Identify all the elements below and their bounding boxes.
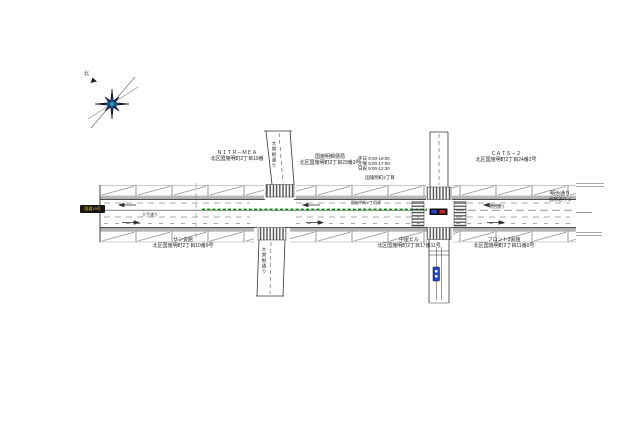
compass-north-label: 北	[84, 70, 89, 77]
area-name-label: 国施明町2丁目	[365, 175, 395, 181]
label-post-office: 国施明郵便局 北区国施明町2丁目23番3号	[299, 154, 360, 166]
lane-label-right: 明治通り	[489, 204, 505, 210]
compass-rose-icon	[88, 77, 138, 128]
label-building-sw: サン会館 北区国施明町2丁目10番9号	[152, 237, 213, 249]
building-nw-address: 北区国施明町2丁目19番	[210, 156, 263, 162]
label-building-ne: ＣＡＴＳ－２ 北区国施明町2丁目24番2号	[475, 151, 536, 163]
post-office-hours: 平日 9:00-19:00 土曜 9:00-17:00 日祝 9:00-12:3…	[358, 156, 390, 171]
post-office-address: 北区国施明町2丁目23番3号	[299, 160, 360, 166]
hours-sunday: 日祝 9:00-12:30	[358, 166, 390, 171]
road-right-end	[576, 184, 604, 236]
vertical-road-nw	[264, 131, 294, 185]
building-s-address: 北区国施明町2丁目17番11号	[377, 243, 441, 249]
building-ne-address: 北区国施明町2丁目24番2号	[475, 157, 536, 163]
label-building-s: 中屋ビル 北区国施明町2丁目17番11号	[377, 237, 441, 249]
road-name-vertical-upper: 大曽根通り	[271, 141, 277, 169]
label-street-right: 明治通り 仮称通り 2	[549, 191, 571, 202]
sidewalk-strips	[100, 196, 576, 231]
lane-label-mid: 国施明町2丁目東	[351, 200, 381, 206]
street-right-sub: 仮称通り 2	[549, 197, 571, 202]
route-number-badge: 国道19号	[80, 205, 105, 213]
label-building-se: フロント3会館 北区国施明町2丁目11番0号	[474, 237, 535, 249]
intersection-signal-badge	[430, 209, 448, 216]
vertical-road-n	[430, 132, 448, 187]
label-building-nw: ＮＩＴＲ－ＭＥＡ 北区国施明町2丁目19番	[210, 150, 263, 162]
road-name-vertical-lower: 大曽根通り	[261, 247, 267, 275]
building-sw-address: 北区国施明町2丁目10番9号	[152, 243, 213, 249]
station-entrance-badge	[433, 267, 440, 281]
lane-label-left: 大手通り	[142, 212, 158, 218]
building-se-address: 北区国施明町2丁目11番0号	[474, 243, 535, 249]
compass-north-arrow	[91, 78, 98, 84]
building-blocks	[100, 185, 576, 242]
map-canvas: 北 ＮＩＴＲ－ＭＥＡ 北区国施明町2丁目19番 国施明郵便局 北区国施明町2丁目…	[0, 0, 640, 421]
